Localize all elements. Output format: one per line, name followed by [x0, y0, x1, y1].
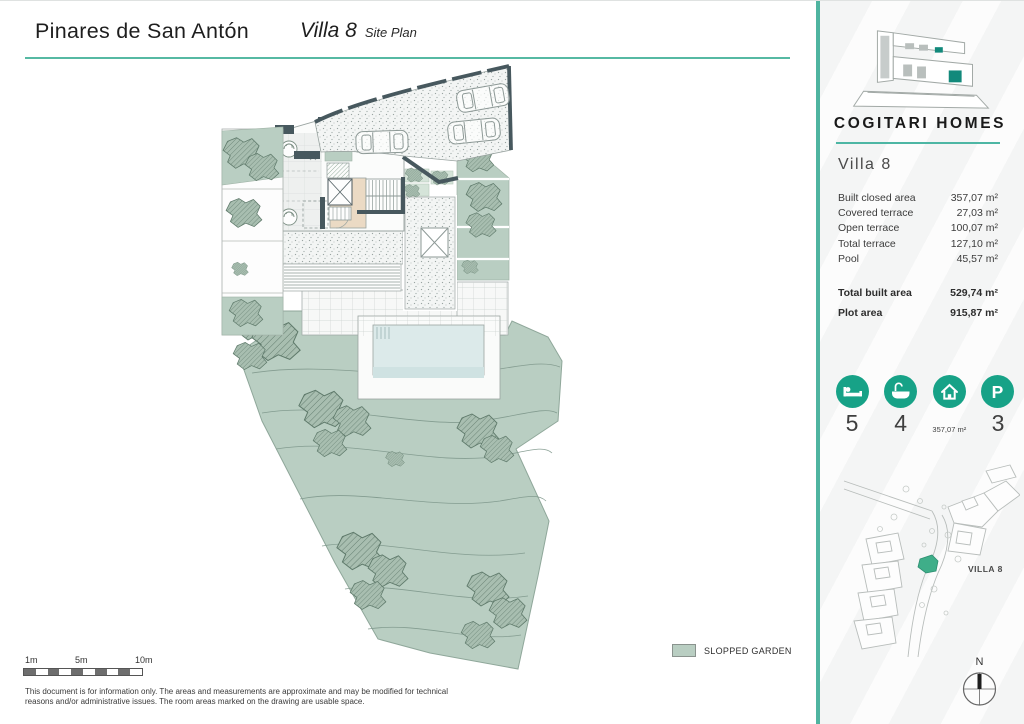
detail-label: Pool	[838, 252, 859, 267]
stats-row: 5 4 357,07 m²	[830, 375, 1020, 437]
area-details: Built closed area 357,07 m² Covered terr…	[838, 191, 998, 323]
drawing-subtitle: Site Plan	[365, 25, 417, 40]
scale-label: 10m	[135, 655, 153, 665]
legend: SLOPPED GARDEN	[672, 644, 792, 657]
minimap-label: VILLA 8	[968, 564, 1003, 574]
detail-row: Total terrace 127,10 m²	[838, 237, 998, 252]
north-label: N	[976, 656, 984, 668]
total-value: 529,74 m²	[950, 284, 998, 304]
drawing-title: Villa 8	[300, 19, 357, 43]
project-title: Pinares de San Antón	[35, 19, 249, 44]
north-arrow-icon: N	[952, 653, 1007, 715]
detail-value: 100,07 m²	[951, 221, 998, 236]
page-root: Pinares de San Antón Villa 8 Site Plan	[0, 0, 1024, 724]
svg-text:P: P	[992, 382, 1004, 402]
total-label: Plot area	[838, 304, 882, 324]
area-totals: Total built area 529,74 m² Plot area 915…	[838, 284, 998, 323]
scale-label: 1m	[25, 655, 38, 665]
bedrooms-count: 5	[846, 411, 859, 437]
disclaimer-text: This document is for information only. T…	[25, 687, 448, 706]
skylight-icon	[421, 228, 448, 257]
detail-value: 357,07 m²	[951, 191, 998, 206]
detail-row: Pool 45,57 m²	[838, 252, 998, 267]
scale-bar-segments	[23, 668, 143, 676]
detail-value: 27,03 m²	[957, 206, 998, 221]
stat-bathrooms: 4	[879, 375, 923, 437]
disclaimer-line: reasons and/or administrative issues. Th…	[25, 697, 448, 707]
sidebar: COGITARI HOMES Villa 8 Built closed area…	[820, 1, 1024, 724]
stat-parking: P 3	[976, 375, 1020, 437]
total-label: Total built area	[838, 284, 912, 304]
detail-row: Open terrace 100,07 m²	[838, 221, 998, 236]
villa-title: Villa 8	[838, 156, 892, 174]
brand-rule	[836, 142, 1000, 144]
disclaimer-line: This document is for information only. T…	[25, 687, 448, 697]
right-garden-band	[457, 144, 509, 280]
scale-bar: 1m 5m 10m	[23, 655, 163, 676]
location-minimap: VILLA 8	[836, 463, 1020, 659]
terrace-steps	[283, 264, 401, 291]
parking-icon: P	[981, 375, 1014, 408]
detail-value: 127,10 m²	[951, 237, 998, 252]
brand-name: COGITARI HOMES	[828, 115, 1012, 133]
total-row: Plot area 915,87 m²	[838, 304, 998, 324]
neighbour-plots	[222, 127, 283, 335]
detail-label: Built closed area	[838, 191, 916, 206]
detail-row: Covered terrace 27,03 m²	[838, 206, 998, 221]
sloped-garden-swatch	[672, 644, 696, 657]
parking-count: 3	[992, 411, 1005, 437]
bathrooms-count: 4	[894, 411, 907, 437]
detail-value: 45,57 m²	[957, 252, 998, 267]
house-icon	[933, 375, 966, 408]
site-plan-drawing	[200, 56, 580, 706]
brand-logo-icon	[846, 13, 998, 117]
bath-icon	[884, 375, 917, 408]
driveway	[315, 66, 511, 161]
staircase	[366, 179, 401, 212]
highlighted-plot	[918, 555, 938, 573]
total-value: 915,87 m²	[950, 304, 998, 324]
total-row: Total built area 529,74 m²	[838, 284, 998, 304]
built-area-value: 357,07 m²	[932, 411, 966, 437]
drawing-title-group: Villa 8 Site Plan	[300, 19, 417, 43]
detail-row: Built closed area 357,07 m²	[838, 191, 998, 206]
detail-label: Open terrace	[838, 221, 899, 236]
detail-label: Total terrace	[838, 237, 896, 252]
legend-label: SLOPPED GARDEN	[704, 646, 792, 656]
scale-label: 5m	[75, 655, 88, 665]
bed-icon	[836, 375, 869, 408]
detail-label: Covered terrace	[838, 206, 913, 221]
stat-bedrooms: 5	[830, 375, 874, 437]
stat-built-area: 357,07 m²	[927, 375, 971, 437]
